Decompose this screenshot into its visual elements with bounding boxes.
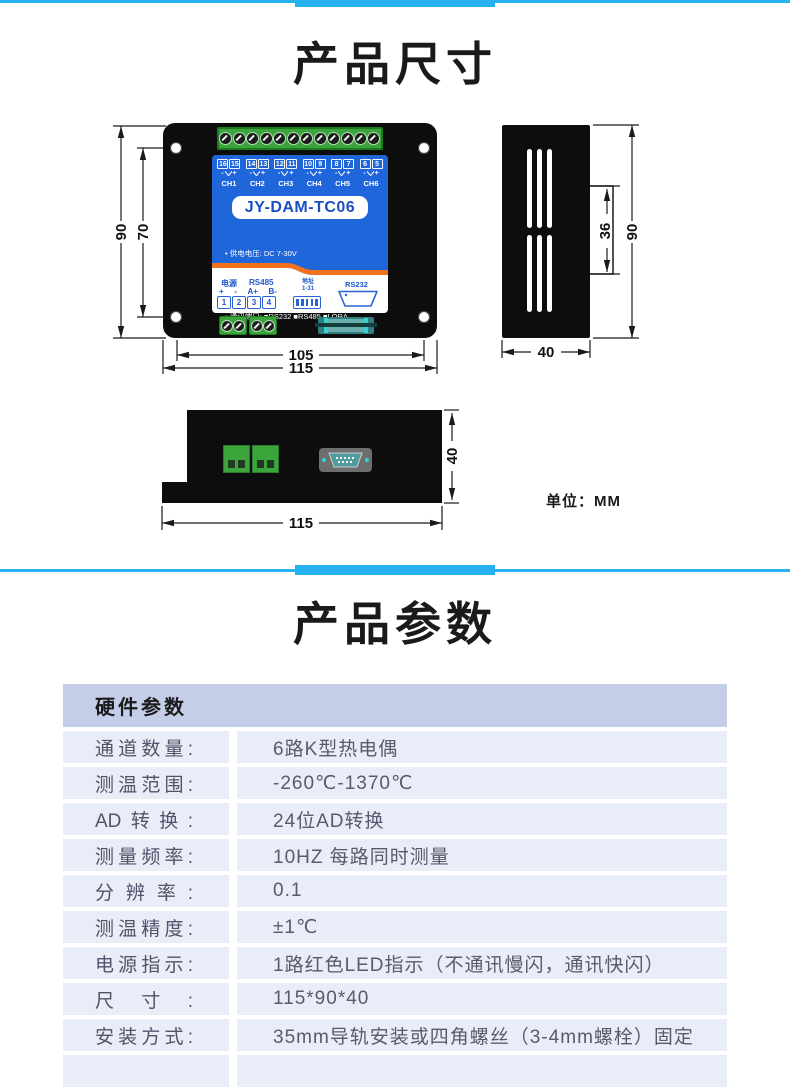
row-value-cell: ±1℃ bbox=[237, 911, 727, 943]
terminal-screw-icon bbox=[300, 132, 313, 145]
terminal-box: 2 bbox=[232, 296, 246, 309]
bottom-view-terminal bbox=[223, 445, 250, 473]
terminal-screw-icon bbox=[273, 132, 286, 145]
bottom-terminal-block bbox=[219, 316, 277, 335]
dim-front-inner-height-label: 70 bbox=[135, 224, 152, 241]
rs485-label: RS485 bbox=[249, 278, 273, 287]
row-value: 0.1 bbox=[273, 880, 302, 902]
row-value: ±1℃ bbox=[273, 916, 318, 939]
row-value: 115*90*40 bbox=[273, 988, 369, 1010]
table-row: 测温范围: -260℃-1370℃ bbox=[63, 767, 727, 799]
b-minus-label: B- bbox=[269, 287, 277, 296]
row-label-cell: AD转换: bbox=[63, 803, 229, 835]
db9-connector-edge bbox=[318, 317, 374, 334]
terminal-number: 5 bbox=[372, 159, 383, 169]
row-value-cell: 24位AD转换 bbox=[237, 803, 727, 835]
terminal-screw-icon bbox=[287, 132, 300, 145]
mounting-hole bbox=[418, 142, 430, 154]
row-label-cell: 电源指示: bbox=[63, 947, 229, 979]
channel-label: CH2 bbox=[250, 179, 265, 188]
table-row: 安装方式: 35mm导轨安装或四角螺丝（3-4mm螺栓）固定 bbox=[63, 1019, 727, 1051]
plus-label: + bbox=[219, 287, 224, 296]
address-label: 地址 1-31 bbox=[294, 279, 322, 293]
top-terminal-block bbox=[217, 127, 383, 150]
row-label-cell: 测温范围: bbox=[63, 767, 229, 799]
channel-label: CH4 bbox=[307, 179, 322, 188]
vent-slot bbox=[537, 235, 542, 312]
table-row: 分辨率: 0.1 bbox=[63, 875, 727, 907]
row-label-cell: 分辨率: bbox=[63, 875, 229, 907]
terminal-number: 14 bbox=[246, 159, 257, 169]
table-row: AD转换: 24位AD转换 bbox=[63, 803, 727, 835]
row-label: 通道数量: bbox=[95, 734, 193, 761]
table-row-partial bbox=[63, 1055, 727, 1087]
row-label: 尺寸: bbox=[95, 986, 193, 1013]
channel-group: 65 -+ CH6 bbox=[358, 159, 385, 188]
terminal-number: 16 bbox=[217, 159, 228, 169]
mounting-hole bbox=[418, 311, 430, 323]
mounting-hole bbox=[170, 142, 182, 154]
polarity-row: + - A+ B- bbox=[219, 287, 277, 296]
device-front-view: 1615 -+ CH1 1413 -+ CH2 1211 -+ CH3 109 … bbox=[163, 123, 437, 338]
table-row: 通道数量: 6路K型热电偶 bbox=[63, 731, 727, 763]
row-value: 24位AD转换 bbox=[273, 806, 385, 833]
bottom-view-terminal bbox=[252, 445, 279, 473]
terminal-screw-icon bbox=[233, 132, 246, 145]
dim-side-height-label: 90 bbox=[624, 224, 641, 241]
row-label-cell: 尺寸: bbox=[63, 983, 229, 1015]
dim-side-clip-label: 36 bbox=[597, 223, 614, 240]
channel-label: CH5 bbox=[335, 179, 350, 188]
row-value: 10HZ 每路同时测量 bbox=[273, 842, 450, 869]
terminal-number: 7 bbox=[343, 159, 354, 169]
row-value-cell: 0.1 bbox=[237, 875, 727, 907]
mounting-hole bbox=[170, 311, 182, 323]
thermocouple-symbol: -+ bbox=[306, 169, 321, 178]
row-value: 35mm导轨安装或四角螺丝（3-4mm螺栓）固定 bbox=[273, 1022, 694, 1049]
panel-wiring-area: 电源 RS485 + - A+ B- 1 2 3 4 地址 1-31 RS232 bbox=[212, 275, 388, 313]
row-label: 电源指示: bbox=[95, 950, 193, 977]
a-plus-label: A+ bbox=[248, 287, 258, 296]
terminal-screw-icon bbox=[314, 132, 327, 145]
device-side-view bbox=[502, 125, 590, 338]
dip-switch-icon bbox=[293, 296, 321, 309]
spec-line: ■网口 ■WIFI ■GPRS ■USB bbox=[225, 344, 367, 355]
vent-slot bbox=[527, 235, 532, 312]
row-label-cell: 测温精度: bbox=[63, 911, 229, 943]
terminal-number: 6 bbox=[360, 159, 371, 169]
row-label: AD转换: bbox=[95, 806, 193, 833]
divider-accent-tab bbox=[295, 565, 495, 575]
terminal-number-row: 1 2 3 4 bbox=[217, 296, 276, 309]
thermocouple-symbol: -+ bbox=[278, 169, 293, 178]
thermocouple-symbol: -+ bbox=[250, 169, 265, 178]
row-label-cell: 测量频率: bbox=[63, 839, 229, 871]
row-label: 分辨率: bbox=[95, 878, 193, 905]
front-label-panel: 1615 -+ CH1 1413 -+ CH2 1211 -+ CH3 109 … bbox=[212, 155, 388, 313]
minus-label: - bbox=[234, 287, 237, 296]
channel-group: 1413 -+ CH2 bbox=[244, 159, 271, 188]
terminal-screw-icon bbox=[260, 132, 273, 145]
vent-slot bbox=[537, 149, 542, 228]
table-row: 测量频率: 10HZ 每路同时测量 bbox=[63, 839, 727, 871]
device-bottom-view-flange bbox=[162, 482, 442, 503]
dim-bottom-width-label: 115 bbox=[289, 515, 313, 532]
row-value: 1路红色LED指示（不通讯慢闪，通讯快闪） bbox=[273, 950, 665, 977]
thermocouple-symbol: -+ bbox=[221, 169, 236, 178]
channel-group: 1211 -+ CH3 bbox=[272, 159, 299, 188]
terminal-screw-icon bbox=[354, 132, 367, 145]
row-label: 测温范围: bbox=[95, 770, 193, 797]
terminal-screw-icon bbox=[327, 132, 340, 145]
dim-side-depth-label: 40 bbox=[538, 344, 555, 361]
terminal-box: 4 bbox=[262, 296, 276, 309]
dim-bottom-depth-label: 40 bbox=[444, 448, 461, 465]
channel-group: 1615 -+ CH1 bbox=[215, 159, 242, 188]
row-value-cell: 6路K型热电偶 bbox=[237, 731, 727, 763]
row-label: 测量频率: bbox=[95, 842, 193, 869]
channel-row: 1615 -+ CH1 1413 -+ CH2 1211 -+ CH3 109 … bbox=[214, 159, 386, 188]
thermocouple-symbol: -+ bbox=[335, 169, 350, 178]
table-header: 硬件参数 bbox=[63, 684, 727, 727]
rs232-label: RS232 bbox=[345, 280, 368, 289]
vent-slot bbox=[547, 149, 552, 228]
terminal-screw-icon bbox=[221, 320, 233, 332]
row-value: -260℃-1370℃ bbox=[273, 772, 413, 795]
vent-slot bbox=[547, 235, 552, 312]
terminal-number: 15 bbox=[229, 159, 240, 169]
terminal-screw-icon bbox=[251, 320, 263, 332]
row-value-cell: 1路红色LED指示（不通讯慢闪，通讯快闪） bbox=[237, 947, 727, 979]
thermocouple-symbol: -+ bbox=[363, 169, 378, 178]
row-label-cell: 通道数量: bbox=[63, 731, 229, 763]
terminal-box: 1 bbox=[217, 296, 231, 309]
row-label: 安装方式: bbox=[95, 1022, 193, 1049]
terminal-number: 10 bbox=[303, 159, 314, 169]
terminal-screw-icon bbox=[219, 132, 232, 145]
terminal-screw-icon bbox=[233, 320, 245, 332]
channel-label: CH6 bbox=[364, 179, 379, 188]
dim-front-height-label: 90 bbox=[113, 224, 130, 241]
row-value-cell: 10HZ 每路同时测量 bbox=[237, 839, 727, 871]
terminal-screw-icon bbox=[341, 132, 354, 145]
bottom-view-db9-connector bbox=[319, 448, 372, 472]
table-row: 电源指示: 1路红色LED指示（不通讯慢闪，通讯快闪） bbox=[63, 947, 727, 979]
row-label: 测温精度: bbox=[95, 914, 193, 941]
channel-group: 109 -+ CH4 bbox=[301, 159, 328, 188]
terminal-number: 12 bbox=[274, 159, 285, 169]
channel-label: CH1 bbox=[221, 179, 236, 188]
terminal-box: 3 bbox=[247, 296, 261, 309]
terminal-screw-icon bbox=[246, 132, 259, 145]
unit-note: 单位：MM bbox=[546, 490, 621, 511]
model-name-badge: JY-DAM-TC06 bbox=[232, 196, 368, 219]
terminal-number: 13 bbox=[258, 159, 269, 169]
table-rows: 通道数量: 6路K型热电偶 测温范围: -260℃-1370℃ AD转换: 24… bbox=[63, 731, 727, 1051]
hardware-parameter-table: 硬件参数 通道数量: 6路K型热电偶 测温范围: -260℃-1370℃ AD转… bbox=[63, 684, 727, 1051]
table-header-label: 硬件参数 bbox=[95, 691, 187, 720]
table-row: 尺寸: 115*90*40 bbox=[63, 983, 727, 1015]
terminal-number: 8 bbox=[331, 159, 342, 169]
row-value-cell: 115*90*40 bbox=[237, 983, 727, 1015]
channel-group: 87 -+ CH5 bbox=[329, 159, 356, 188]
row-value-cell: -260℃-1370℃ bbox=[237, 767, 727, 799]
page-title-params: 产品参数 bbox=[0, 588, 790, 654]
terminal-screw-icon bbox=[263, 320, 275, 332]
table-row: 测温精度: ±1℃ bbox=[63, 911, 727, 943]
spec-line: • 供电电压: DC 7-30V bbox=[225, 249, 367, 260]
terminal-number: 11 bbox=[286, 159, 297, 169]
terminal-screw-icon bbox=[367, 132, 380, 145]
row-value-cell: 35mm导轨安装或四角螺丝（3-4mm螺栓）固定 bbox=[237, 1019, 727, 1051]
terminal-number: 9 bbox=[315, 159, 326, 169]
rs232-port-icon bbox=[337, 290, 379, 308]
channel-label: CH3 bbox=[278, 179, 293, 188]
row-value: 6路K型热电偶 bbox=[273, 734, 398, 761]
vent-slot bbox=[527, 149, 532, 228]
row-label-cell: 安装方式: bbox=[63, 1019, 229, 1051]
